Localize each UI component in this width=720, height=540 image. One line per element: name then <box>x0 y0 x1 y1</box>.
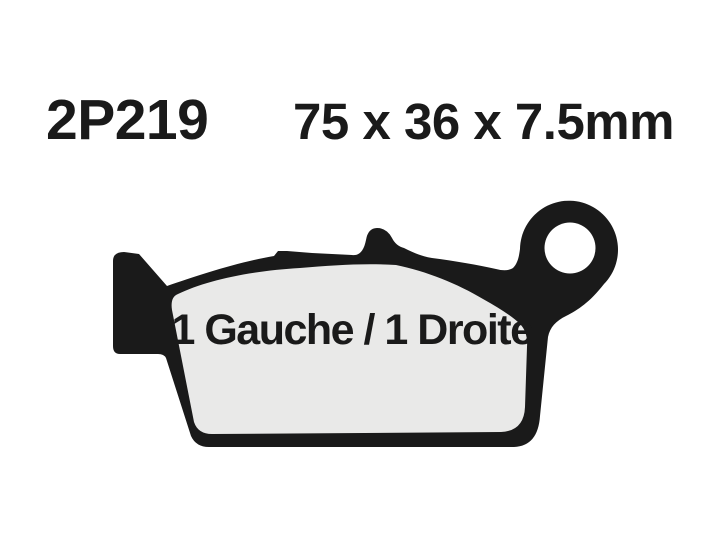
part-number: 2P219 <box>46 88 208 152</box>
pad-orientation-label: 1 Gauche / 1 Droite <box>171 306 533 354</box>
mounting-hole <box>545 223 596 274</box>
brake-pad-diagram-canvas: 2P219 75 x 36 x 7.5mm 1 Gauche / 1 Droit… <box>0 0 720 540</box>
dimensions-label: 75 x 36 x 7.5mm <box>293 93 674 150</box>
product-diagram: 2P219 75 x 36 x 7.5mm 1 Gauche / 1 Droit… <box>0 0 720 540</box>
